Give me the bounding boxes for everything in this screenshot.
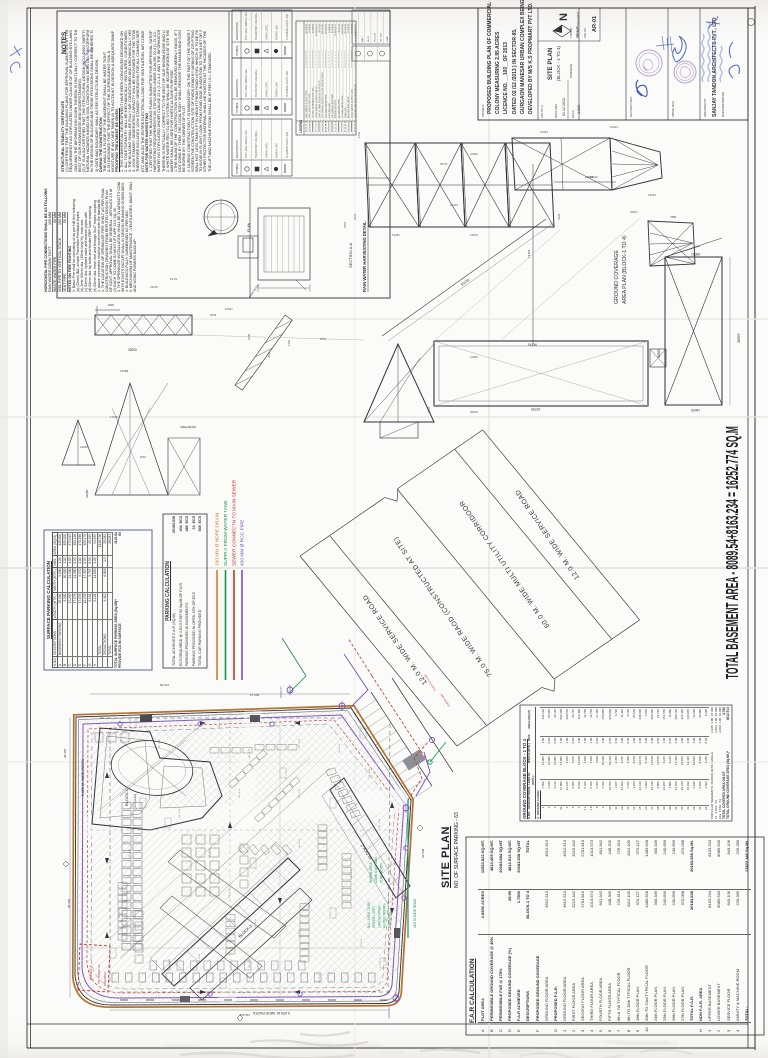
svg-text:DESCRIPTION: DESCRIPTION <box>235 22 239 40</box>
svg-text:25 MM Ø GI: 25 MM Ø GI <box>316 24 318 36</box>
svg-text:TRANSPORT LINE WALL: TRANSPORT LINE WALL <box>255 130 258 158</box>
svg-text:8A 125: 8A 125 <box>367 35 370 42</box>
svg-text:PLANTATION: PLANTATION <box>379 863 383 883</box>
svg-text:9127: 9127 <box>427 406 431 413</box>
svg-text:TRANSPORT LINE WALL: TRANSPORT LINE WALL <box>255 69 258 97</box>
svg-text:BASEMENT: BASEMENT <box>103 971 107 986</box>
svg-text:40.303: 40.303 <box>67 898 71 908</box>
svg-text:60790: 60790 <box>531 407 540 411</box>
svg-text:10547: 10547 <box>225 307 233 311</box>
svg-text:40-25-20: 40-25-20 <box>339 23 341 33</box>
svg-text:LVL +0.00: LVL +0.00 <box>309 898 311 908</box>
svg-text:LVL +0.00: LVL +0.00 <box>351 868 353 878</box>
svg-text:100 MM Ø: 100 MM Ø <box>326 24 328 35</box>
svg-text:38.497: 38.497 <box>63 748 67 758</box>
svg-text:SEWER LINE: SEWER LINE <box>276 143 279 158</box>
svg-text:RAIN WATER HARVESTING DETAIL: RAIN WATER HARVESTING DETAIL <box>362 221 367 292</box>
svg-text:LVL +0.00: LVL +0.00 <box>249 748 251 758</box>
svg-text:LVL +0.00: LVL +0.00 <box>199 953 201 963</box>
svg-text:LVL +0.00: LVL +0.00 <box>319 973 321 983</box>
svg-text:AREA PLAN (BLOCK-1 TO 4): AREA PLAN (BLOCK-1 TO 4) <box>622 235 628 304</box>
svg-text:2000: 2000 <box>267 351 271 358</box>
svg-text:CWS WATER & VENT PIPE: CWS WATER & VENT PIPE <box>305 90 308 118</box>
svg-text:LVL +0.00: LVL +0.00 <box>299 928 301 938</box>
svg-text:AREA DETAIL: AREA DETAIL <box>180 425 197 429</box>
svg-text:22643: 22643 <box>590 175 598 179</box>
svg-text:RAIN PIT: RAIN PIT <box>279 686 283 698</box>
svg-text:50 MM Ø: 50 MM Ø <box>348 24 350 33</box>
svg-text:1852: 1852 <box>343 221 347 228</box>
svg-text:5 AMP: 5 AMP <box>386 35 389 42</box>
svg-text:GID SPRINKLER RISER: GID SPRINKLER RISER <box>332 93 334 118</box>
svg-text:GID FIRE LINE: GID FIRE LINE <box>329 103 331 118</box>
svg-text:16917: 16917 <box>630 210 638 214</box>
svg-text:SANJAY TANDON ARCHITECTS PVT.,: SANJAY TANDON ARCHITECTS PVT., LTD <box>712 17 718 117</box>
svg-text:5428: 5428 <box>557 213 561 220</box>
svg-text:LVL +0.00: LVL +0.00 <box>249 958 251 968</box>
svg-text:DRAIN LEVEL: DRAIN LEVEL <box>265 24 268 40</box>
svg-text:GURUGRAM/CHD.: GURUGRAM/CHD. <box>721 91 725 117</box>
svg-text:DRAIN LEVEL: DRAIN LEVEL <box>265 142 268 158</box>
svg-text:(BLOCK - 1 TO 4): (BLOCK - 1 TO 4) <box>556 45 561 81</box>
svg-text:LAWN & SHRUBS: LAWN & SHRUBS <box>374 857 378 883</box>
svg-text:AS PER NORMS: AS PER NORMS <box>383 904 387 928</box>
svg-text:21188: 21188 <box>80 445 88 449</box>
svg-text:LVL +0.00: LVL +0.00 <box>369 768 371 778</box>
svg-text:ISSUE DATE: ISSUE DATE <box>555 104 558 118</box>
svg-text:1241: 1241 <box>357 131 361 138</box>
svg-text:BLOCK-4: BLOCK-4 <box>89 965 93 980</box>
svg-text:BAR 1: BAR 1 <box>361 35 364 42</box>
svg-text:100 MM Ø: 100 MM Ø <box>345 24 347 35</box>
svg-text:ARCHITECTS:: ARCHITECTS: <box>703 98 707 117</box>
svg-text:CWS GI TANK 100-80-25-20-40-25: CWS GI TANK 100-80-25-20-40-25-20 <box>318 80 321 118</box>
svg-text:80 MM Ø: 80 MM Ø <box>313 24 315 33</box>
svg-text:17266: 17266 <box>120 369 129 373</box>
svg-text:13365: 13365 <box>470 355 478 359</box>
svg-text:7450: 7450 <box>670 215 677 219</box>
svg-text:LVL +0.00: LVL +0.00 <box>219 718 221 728</box>
svg-text:PLUMBING SUPP. LINE: PLUMBING SUPP. LINE <box>286 132 289 158</box>
svg-text:FIRE LINE: FIRE LINE <box>345 107 347 118</box>
svg-text:BLOCK-2: BLOCK-2 <box>359 842 373 860</box>
svg-text:50091: 50091 <box>691 252 700 256</box>
svg-text:DRG TITLE:: DRG TITLE: <box>541 105 544 118</box>
svg-text:LVL +0.00: LVL +0.00 <box>379 818 381 828</box>
svg-text:2639: 2639 <box>210 313 217 317</box>
svg-text:BLOWDOWN PIPE: BLOWDOWN PIPE <box>339 98 341 118</box>
svg-text:PLAN: PLAN <box>247 222 251 232</box>
svg-text:13570: 13570 <box>470 233 478 237</box>
svg-text:PLUMBING SUPP. LINE: PLUMBING SUPP. LINE <box>286 71 289 97</box>
svg-text:45.0 M WIDE ROAD: 45.0 M WIDE ROAD <box>413 898 417 928</box>
svg-text:LVL +0.00: LVL +0.00 <box>209 848 211 858</box>
svg-text:2440: 2440 <box>247 333 251 340</box>
svg-text:LVL +0.00: LVL +0.00 <box>361 938 363 948</box>
svg-text:2000: 2000 <box>108 303 114 307</box>
svg-text:APPROVED: APPROVED <box>388 910 392 928</box>
svg-text:TO SWT CHAINAGE FOR JMC: TO SWT CHAINAGE FOR JMC <box>312 87 315 118</box>
svg-text:ARCHITECT SIGN.: ARCHITECT SIGN. <box>630 96 633 117</box>
svg-text:25 MM Ø GI: 25 MM Ø GI <box>335 24 337 36</box>
svg-text:PROJECT:: PROJECT: <box>481 104 485 117</box>
svg-text:64.538: 64.538 <box>421 848 425 858</box>
svg-text:CHKD BY: CHKD BY <box>570 27 573 38</box>
svg-text:DRG NO.: DRG NO. <box>584 27 587 38</box>
svg-text:STP UNDER GR.: STP UNDER GR. <box>97 963 101 984</box>
svg-text:1100: 1100 <box>287 340 291 346</box>
svg-text:IRRIGATION PIPE: IRRIGATION PIPE <box>334 99 337 118</box>
svg-text:400 MM Ø RCC PIPE: 400 MM Ø RCC PIPE <box>240 520 246 566</box>
svg-text:N: N <box>558 13 570 21</box>
svg-text:COLD WATER SUPPLY LINE GI: COLD WATER SUPPLY LINE GI <box>315 86 318 118</box>
svg-text:23443: 23443 <box>540 130 548 134</box>
svg-text:LVL +0.00: LVL +0.00 <box>255 918 257 928</box>
svg-text:RAIN PIT: RAIN PIT <box>387 1006 391 1018</box>
svg-text:24440: 24440 <box>450 203 458 207</box>
svg-text:25737: 25737 <box>440 162 448 166</box>
svg-text:COLD WATER SUPPLY LINE: COLD WATER SUPPLY LINE <box>351 89 354 118</box>
svg-text:SARVESH: SARVESH <box>569 64 573 78</box>
svg-text:HOT WATER SUPPLY GI LINE FOR K: HOT WATER SUPPLY GI LINE FOR KITCHEN <box>321 72 324 118</box>
svg-text:GREEN AREA: GREEN AREA <box>369 861 373 883</box>
svg-text:LVL +0.00: LVL +0.00 <box>299 838 301 848</box>
svg-text:5.029 M. WIDE RASTA: 5.029 M. WIDE RASTA <box>252 1011 290 1015</box>
svg-text:AS REQD: AS REQD <box>341 24 344 34</box>
svg-text:30000: 30000 <box>128 348 137 352</box>
svg-text:24456: 24456 <box>470 152 478 156</box>
svg-text:BAL. AREA TO BE: BAL. AREA TO BE <box>367 902 371 928</box>
svg-text:LVL +0.00: LVL +0.00 <box>299 788 301 798</box>
svg-text:SECTION A-A: SECTION A-A <box>348 242 353 268</box>
svg-text:12415: 12415 <box>527 249 531 258</box>
svg-text:LVL +0.00: LVL +0.00 <box>179 808 181 818</box>
svg-text:SYMBOL: SYMBOL <box>235 102 239 113</box>
svg-text:LVL +0.00: LVL +0.00 <box>339 743 341 753</box>
svg-text:LVL +0.00: LVL +0.00 <box>159 738 161 748</box>
svg-text:SEWER LINE: SEWER LINE <box>276 25 279 40</box>
svg-text:SCALE: SCALE <box>572 110 575 118</box>
svg-text:AR-01: AR-01 <box>592 16 598 32</box>
svg-text:LVL +0.00: LVL +0.00 <box>159 973 161 983</box>
svg-text:GWT SOIL & VENT PIPE: GWT SOIL & VENT PIPE <box>309 93 311 118</box>
svg-text:01.12.2013: 01.12.2013 <box>562 98 566 116</box>
svg-text:JB 3082 JR: JB 3082 JR <box>356 31 358 42</box>
svg-text:91496: 91496 <box>528 343 537 347</box>
svg-text:8151: 8151 <box>140 455 147 459</box>
svg-text:40-25-20: 40-25-20 <box>319 23 321 33</box>
svg-text:LANDSCAPING: LANDSCAPING <box>377 905 381 928</box>
svg-text:SYMBOL: SYMBOL <box>235 163 239 174</box>
svg-text:DRAIN LEVEL: DRAIN LEVEL <box>265 81 268 97</box>
svg-text:3123: 3123 <box>353 213 357 220</box>
svg-text:TOP LEVEL WATER LINE: TOP LEVEL WATER LINE <box>245 130 248 158</box>
svg-text:SEWER CONNECTN TO MAIN SEWER: SEWER CONNECTN TO MAIN SEWER <box>232 479 238 566</box>
svg-text:DESCRIPTION: DESCRIPTION <box>235 79 239 97</box>
svg-text:46975: 46975 <box>737 333 741 343</box>
svg-text:GID RAIN WATER PIPE: GID RAIN WATER PIPE <box>325 94 328 118</box>
svg-text:12.0 M. WIDE SERVICE ROAD: 12.0 M. WIDE SERVICE ROAD <box>514 488 581 581</box>
svg-text:17135: 17135 <box>110 415 118 419</box>
svg-text:LVL +0.00: LVL +0.00 <box>119 908 121 918</box>
svg-text:33580: 33580 <box>85 489 89 498</box>
svg-text:LVL +0.00: LVL +0.00 <box>129 848 131 858</box>
svg-text:PLUMBING SUPP. LINE: PLUMBING SUPP. LINE <box>286 14 289 40</box>
svg-text:38240: 38240 <box>470 410 478 414</box>
svg-text:OVERFLOW: OVERFLOW <box>439 693 451 708</box>
svg-text:100 MM Ø: 100 MM Ø <box>306 24 308 35</box>
svg-text:SANJEEV PRASHANT: SANJEEV PRASHANT <box>576 11 580 38</box>
svg-text:50 MM Ø: 50 MM Ø <box>329 24 331 33</box>
svg-text:1:200: 1:200 <box>577 105 581 114</box>
svg-text:111.643: 111.643 <box>239 1013 250 1017</box>
svg-text:150 MM Ø HDPE DRAIN: 150 MM Ø HDPE DRAIN <box>215 512 221 566</box>
svg-text:TRANSPORT LINE WALL: TRANSPORT LINE WALL <box>255 12 258 40</box>
svg-text:BLOCK-1: BLOCK-1 <box>124 788 129 806</box>
svg-text:SITE PLAN: SITE PLAN <box>547 47 554 80</box>
svg-text:5.029 M. WIDE RASTA: 5.029 M. WIDE RASTA <box>81 758 85 796</box>
svg-text:TEL CALL: TEL CALL <box>380 32 383 42</box>
svg-text:80 MM Ø: 80 MM Ø <box>332 24 334 33</box>
svg-text:9554: 9554 <box>320 337 327 341</box>
svg-text:DESCRIPTION: DESCRIPTION <box>235 140 239 158</box>
svg-text:67.052: 67.052 <box>250 693 260 697</box>
svg-text:SEWER LINE: SEWER LINE <box>276 82 279 97</box>
svg-text:PULL SW: PULL SW <box>374 33 376 42</box>
svg-text:AS REQD: AS REQD <box>321 24 324 34</box>
svg-text:SUPPLY FROM WATER TANK: SUPPLY FROM WATER TANK <box>223 499 229 566</box>
svg-text:(G.F. AREA): (G.F. AREA) <box>133 794 137 808</box>
svg-text:TOP LEVEL WATER LINE: TOP LEVEL WATER LINE <box>245 69 248 97</box>
svg-text:LVL +0.00: LVL +0.00 <box>299 738 301 748</box>
svg-text:OWNER SIGN.: OWNER SIGN. <box>672 100 675 117</box>
svg-text:16005: 16005 <box>691 408 700 412</box>
svg-text:AIR RELEASE VALVE: AIR RELEASE VALVE <box>347 96 350 118</box>
svg-text:AREA DETAIL: AREA DETAIL <box>248 282 261 298</box>
svg-text:60.347: 60.347 <box>160 683 170 687</box>
svg-text:19094: 19094 <box>648 193 656 197</box>
svg-text:LEGEND FOR ELECTRIFICATION: LEGEND FOR ELECTRIFICATION <box>354 83 357 118</box>
svg-text:50 MM Ø: 50 MM Ø <box>309 24 311 33</box>
svg-text:SYMBOL: SYMBOL <box>235 45 239 56</box>
svg-text:LVL +0.00: LVL +0.00 <box>239 788 241 798</box>
svg-text:13365: 13365 <box>392 233 400 237</box>
svg-text:GREEN / SOFT: GREEN / SOFT <box>372 905 376 928</box>
svg-text:10943: 10943 <box>610 125 618 129</box>
svg-text:GROUND COVERAGE: GROUND COVERAGE <box>614 250 620 304</box>
svg-text:TO RAIN WATER PIPE: TO RAIN WATER PIPE <box>341 95 344 118</box>
svg-text:TOP LEVEL WATER LINE: TOP LEVEL WATER LINE <box>245 12 248 40</box>
